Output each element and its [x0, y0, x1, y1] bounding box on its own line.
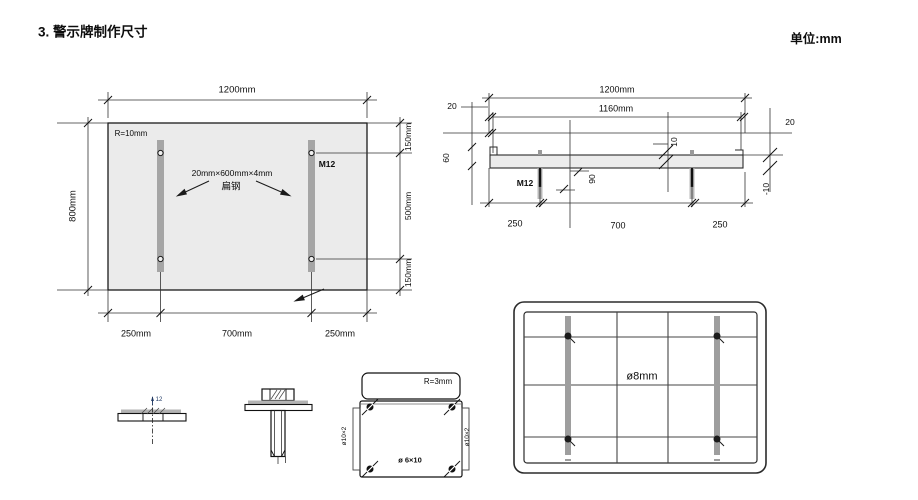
front-bottom-dim-right: 250mm — [325, 330, 355, 339]
top-bottom-dim-right: 250 — [712, 221, 727, 230]
up-arrow — [151, 396, 154, 401]
top-depth-dim: 60 — [442, 153, 451, 162]
top-inner-width-dim: 1160mm — [599, 105, 633, 114]
bracket-hole-right-label: ø10×2 — [465, 428, 472, 447]
top-right-offset-dim: 20 — [785, 118, 794, 127]
front-height-dim: 800mm — [68, 190, 78, 222]
units-label: 单位:mm — [790, 33, 841, 46]
top-bottom-dim-left: 250 — [507, 220, 522, 229]
detail-bolt — [245, 389, 312, 464]
top-left-offset-dim: 20 — [447, 102, 456, 111]
front-bottom-dim-mid: 700mm — [222, 330, 252, 339]
page-title: 3. 警示牌制作尺寸 — [38, 25, 148, 39]
flat-steel-bar-right — [308, 140, 315, 272]
top-width-dim: 1200mm — [599, 86, 634, 95]
front-right-dim-top: 150mm — [404, 123, 413, 151]
top-bolt-label: M12 — [517, 179, 534, 188]
front-right-dim-bottom: 150mm — [404, 259, 413, 287]
technical-drawing — [0, 0, 918, 500]
bracket-radius-label: R=3mm — [424, 378, 452, 386]
flat-steel-bar-left — [157, 140, 164, 272]
front-bottom-dim-left: 250mm — [121, 330, 151, 339]
plate-thickness-label: 12 — [156, 397, 163, 403]
bolt-shank — [271, 411, 285, 457]
back-hole-diameter-label: ø8mm — [626, 372, 657, 383]
top-lip-dim: 10 — [670, 137, 679, 146]
front-bolt-label: M12 — [319, 160, 336, 169]
front-steel-name: 扁钢 — [221, 182, 240, 192]
back-view-drawing — [514, 302, 766, 473]
front-width-dim: 1200mm — [219, 85, 256, 95]
front-corner-radius: R=10mm — [115, 130, 148, 138]
front-view-drawing — [57, 92, 412, 322]
front-right-dim-mid: 500mm — [404, 192, 413, 220]
bracket-flange-left — [353, 408, 360, 470]
bracket-hole-left-label: ø10×2 — [342, 427, 349, 446]
drawing-page: 3. 警示牌制作尺寸 单位:mm 1200mm R=10mm M12 20mm×… — [0, 0, 918, 500]
top-bolt-length-dim: 90 — [588, 174, 597, 183]
top-bottom-dim-mid: 700 — [610, 222, 625, 231]
top-right-drop-dim: -10 — [762, 183, 771, 195]
front-steel-spec: 20mm×600mm×4mm — [192, 169, 273, 178]
detail-plate-section — [118, 396, 186, 444]
bracket-hole-bottom-label: ø 6×10 — [398, 456, 422, 464]
